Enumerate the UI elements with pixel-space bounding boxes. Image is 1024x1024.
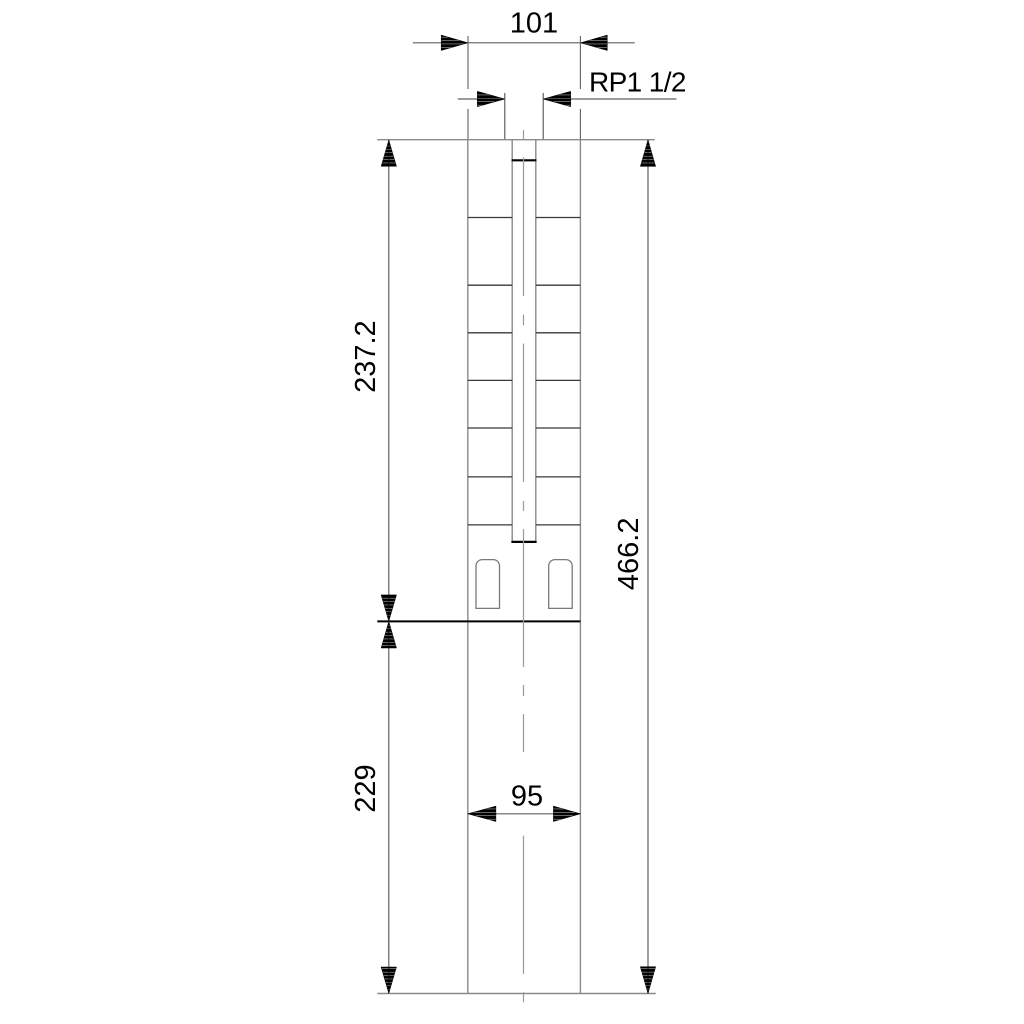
svg-text:101: 101: [510, 7, 558, 39]
svg-text:229: 229: [350, 764, 382, 812]
svg-text:237.2: 237.2: [350, 320, 382, 393]
svg-text:466.2: 466.2: [613, 518, 645, 591]
svg-text:95: 95: [511, 780, 543, 812]
svg-text:RP1 1/2: RP1 1/2: [589, 66, 687, 97]
